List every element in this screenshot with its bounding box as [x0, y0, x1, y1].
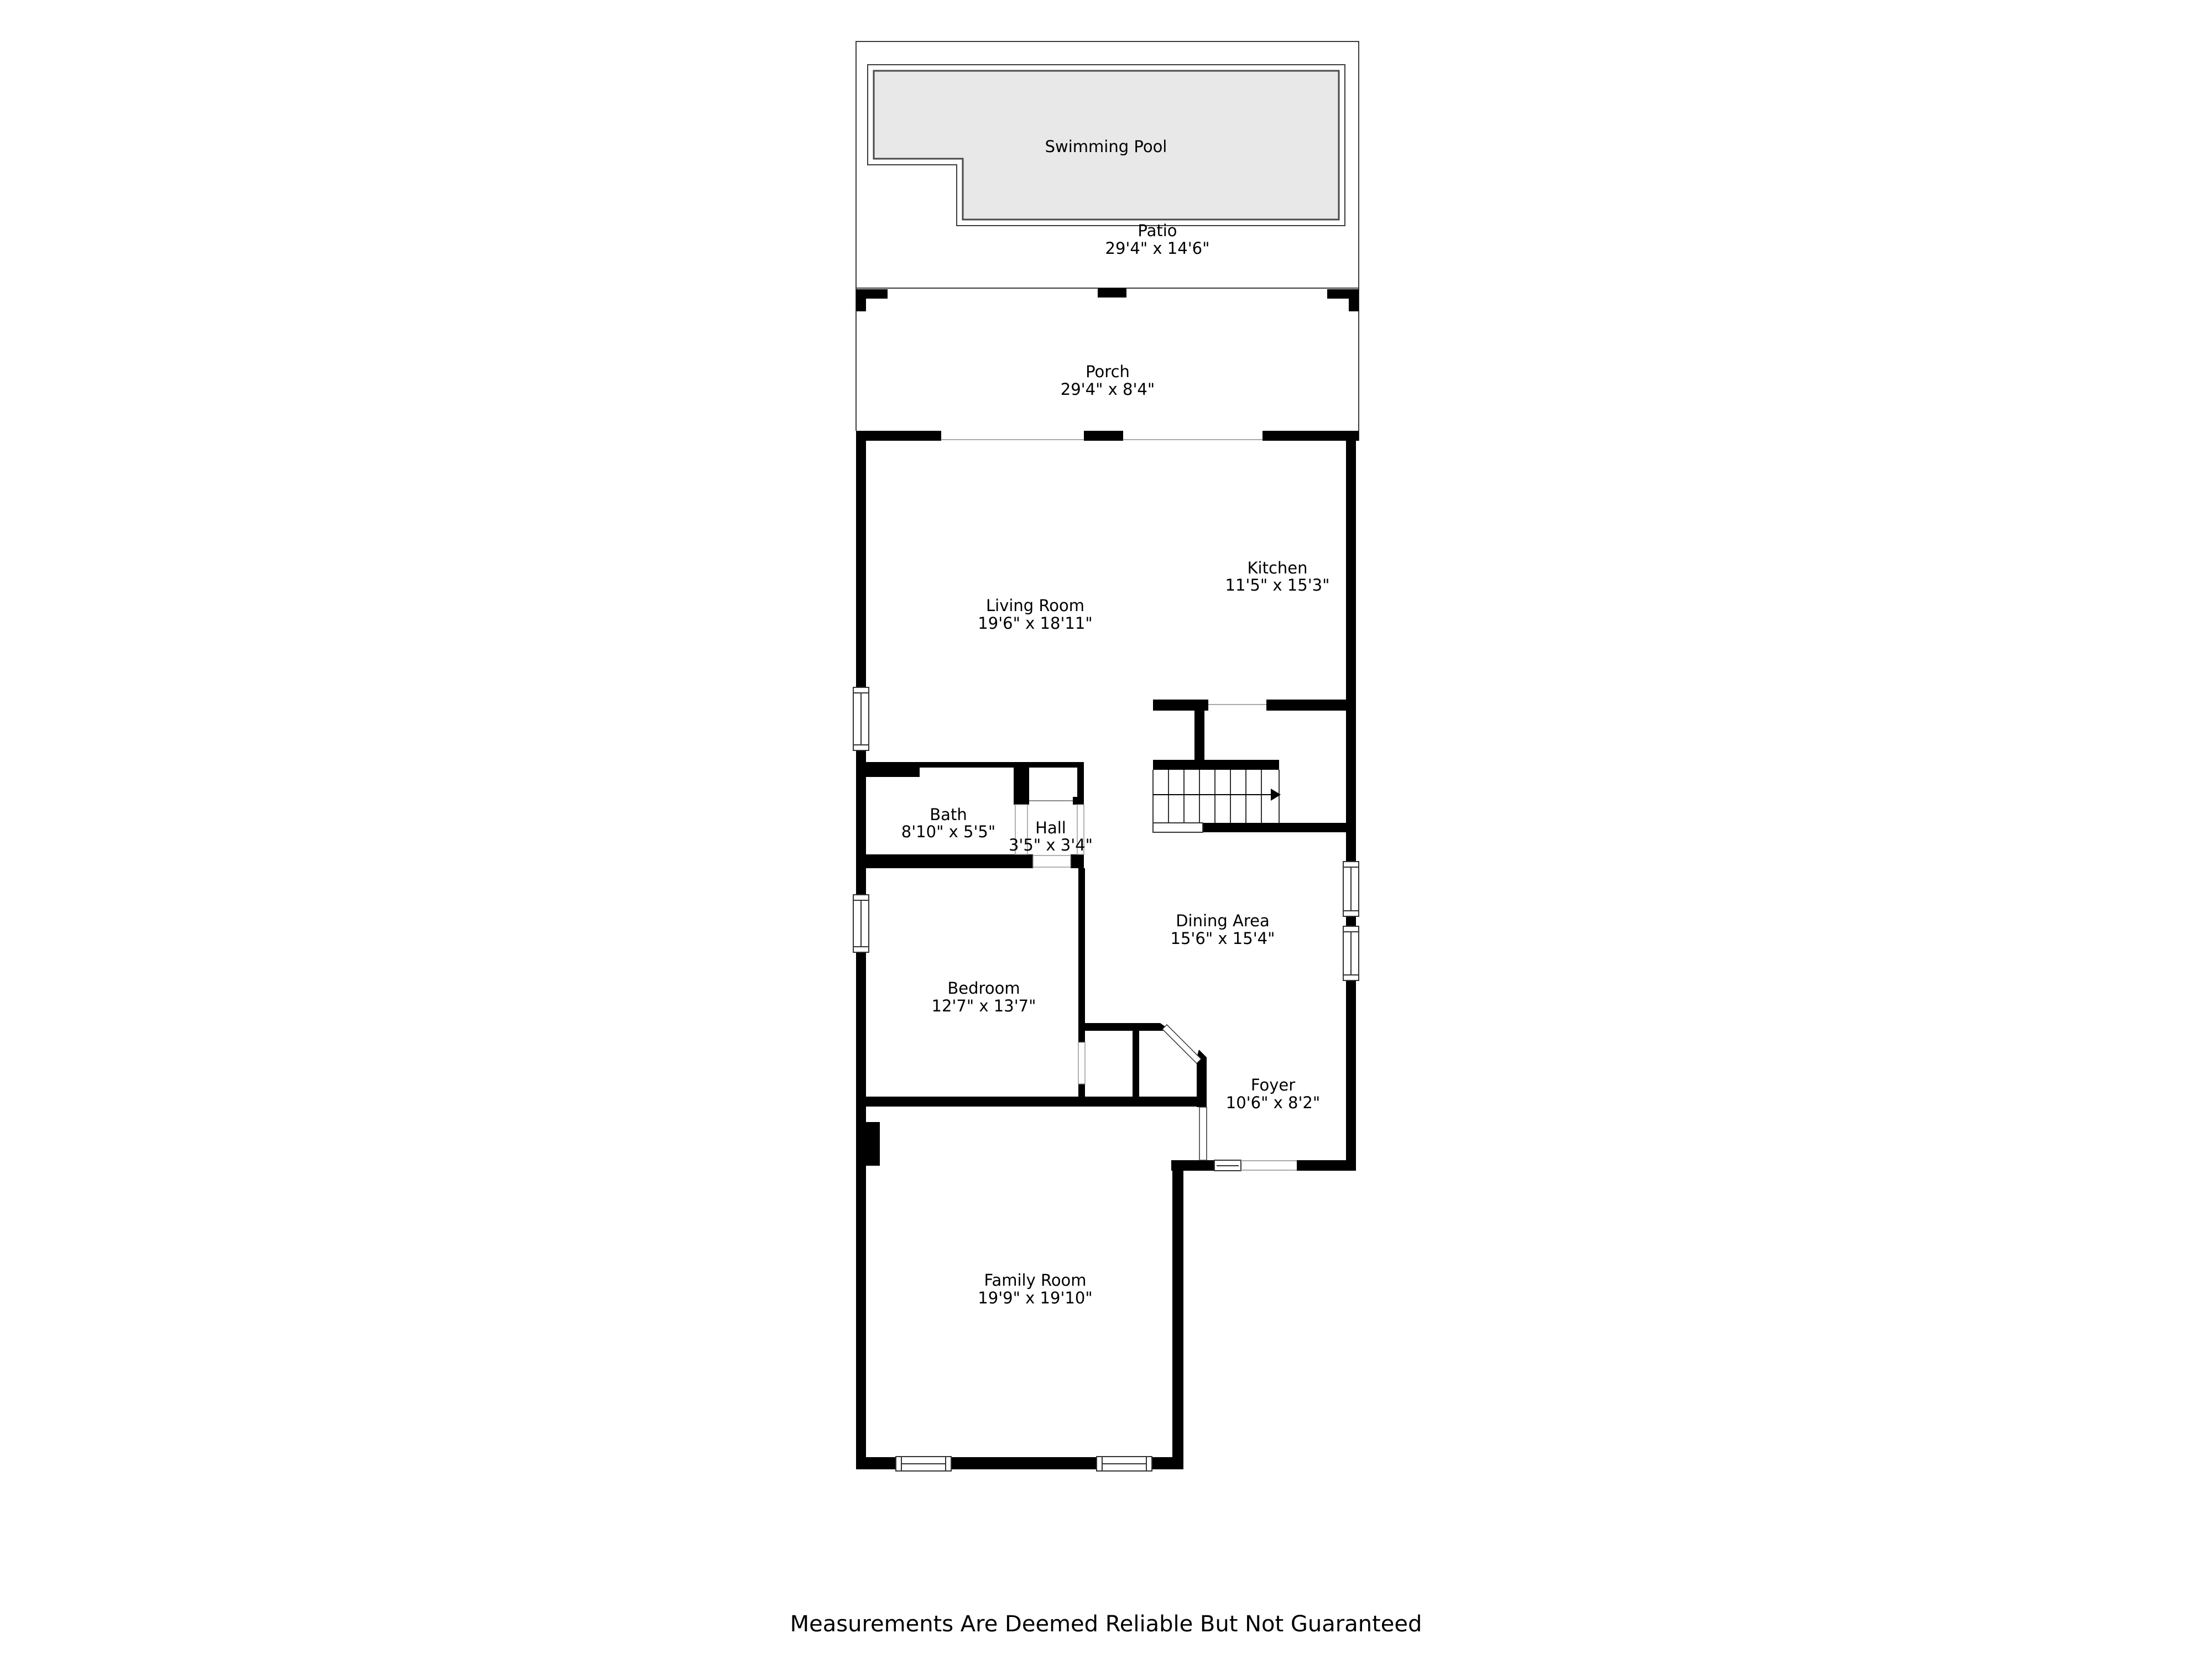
- wall-porch-bottom-left: [856, 431, 941, 441]
- wall-family-bottom-2: [951, 1457, 1097, 1469]
- room-dims-patio: 29'4" x 14'6": [1105, 239, 1210, 258]
- floor-plan-page: Swimming Pool Patio 29'4" x 14'6" Porch …: [0, 0, 2212, 1659]
- room-dims-living-room: 19'6" x 18'11": [978, 614, 1092, 633]
- porch-pillar-right-v: [1349, 289, 1359, 311]
- room-dims-bedroom: 12'7" x 13'7": [932, 997, 1036, 1015]
- wall-kitchen-bottom-left: [1153, 700, 1208, 711]
- room-dims-kitchen: 11'5" x 15'3": [1225, 576, 1330, 594]
- room-label-foyer: Foyer: [1251, 1076, 1295, 1094]
- wall-hall-right: [1077, 762, 1084, 797]
- room-label-bedroom: Bedroom: [947, 979, 1020, 998]
- stair-first-tread: [1153, 823, 1203, 832]
- hall-bedroom-door-opening: [1033, 855, 1071, 867]
- window-family-bottom-1: [896, 1457, 951, 1471]
- porch-pillar-left-v: [856, 289, 866, 311]
- wall-bath-bottom-left: [856, 854, 1033, 868]
- closet-door-leaf-diagonal: [1162, 1025, 1201, 1063]
- wall-porch-bottom-right: [1262, 431, 1359, 441]
- window-right-dining-1: [1343, 862, 1359, 916]
- window-right-dining-2: [1343, 926, 1359, 980]
- wall-stair-bottom: [1203, 823, 1356, 832]
- wall-stair-landing: [1194, 711, 1204, 761]
- wall-left-3: [856, 952, 866, 1469]
- wall-bedroom-right-stub: [1078, 1084, 1085, 1097]
- window-family-bottom-2: [1097, 1457, 1152, 1471]
- floor-plan: Swimming Pool Patio 29'4" x 14'6" Porch …: [0, 0, 2212, 1659]
- wall-hall-jamb-right: [1073, 797, 1084, 805]
- room-dims-family-room: 19'9" x 19'10": [978, 1288, 1092, 1307]
- wall-closet-divider: [1133, 1030, 1139, 1097]
- wall-bedroom-right-upper: [1078, 868, 1085, 1042]
- wall-bath-top: [856, 762, 1084, 768]
- wall-kitchen-bottom-right: [1266, 700, 1356, 711]
- porch-pillar-middle: [1098, 288, 1126, 298]
- room-label-living-room: Living Room: [986, 596, 1084, 615]
- room-label-dining-area: Dining Area: [1176, 911, 1270, 930]
- wall-right-1: [1346, 441, 1356, 862]
- wall-closet-top: [1085, 1023, 1160, 1031]
- room-label-patio: Patio: [1138, 221, 1177, 240]
- wall-bath-top-thick: [856, 768, 920, 777]
- wall-right-3: [1346, 980, 1356, 1171]
- room-labels: Swimming Pool Patio 29'4" x 14'6" Porch …: [901, 137, 1330, 1307]
- chimney-block: [866, 1122, 880, 1166]
- room-label-kitchen: Kitchen: [1248, 559, 1308, 577]
- wall-right-2: [1346, 916, 1356, 926]
- wall-family-right: [1172, 1160, 1183, 1469]
- room-dims-porch: 29'4" x 8'4": [1061, 380, 1155, 399]
- bedroom-door-opening: [1078, 1042, 1085, 1084]
- wall-porch-bottom-middle: [1084, 431, 1123, 441]
- wall-foyer-bottom-left: [1171, 1160, 1214, 1171]
- room-dims-dining-area: 15'6" x 15'4": [1171, 929, 1275, 948]
- room-dims-hall: 3'5" x 3'4": [1009, 836, 1093, 854]
- wall-foyer-left: [1197, 1057, 1207, 1107]
- room-label-family-room: Family Room: [984, 1271, 1086, 1290]
- room-dims-bath: 8'10" x 5'5": [901, 822, 995, 841]
- room-label-porch: Porch: [1086, 362, 1130, 381]
- room-label-hall: Hall: [1035, 818, 1066, 837]
- wall-stair-top: [1153, 760, 1279, 770]
- foyer-door-leaf: [1199, 1107, 1207, 1160]
- room-label-swimming-pool: Swimming Pool: [1045, 137, 1167, 156]
- room-dims-foyer: 10'6" x 8'2": [1226, 1093, 1320, 1112]
- wall-bath-bottom-right: [1071, 854, 1084, 868]
- wall-left-1: [856, 431, 866, 687]
- wall-family-bottom-1: [856, 1457, 896, 1469]
- wall-foyer-bottom-right: [1297, 1160, 1356, 1171]
- wall-hall-jamb-left: [1022, 797, 1029, 805]
- disclaimer-text: Measurements Are Deemed Reliable But Not…: [790, 1611, 1422, 1637]
- window-left-living: [853, 687, 869, 750]
- wall-bedroom-bottom: [856, 1097, 1207, 1107]
- room-label-bath: Bath: [930, 805, 967, 824]
- window-left-bedroom: [853, 895, 869, 952]
